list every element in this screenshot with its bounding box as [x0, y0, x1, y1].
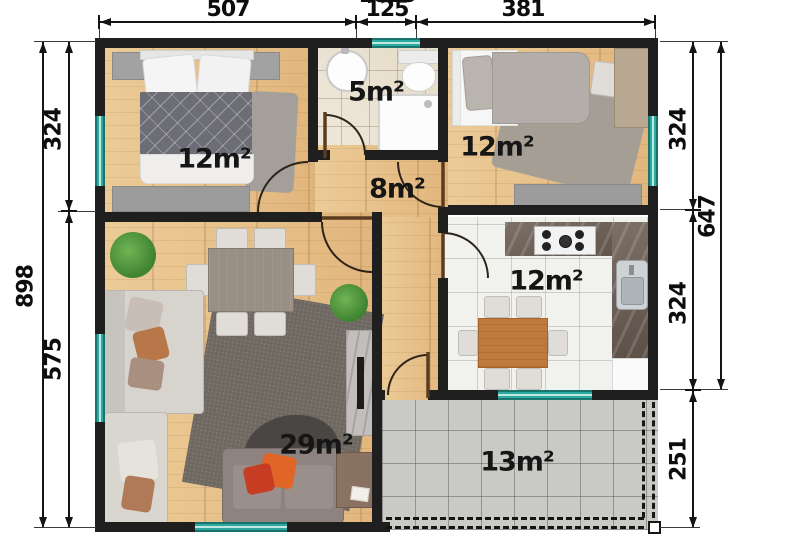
dim-right-1: 324 [667, 95, 692, 165]
dim-arrow [689, 517, 697, 528]
dim-arrow [717, 379, 725, 390]
dim-top-3: 381 [488, 0, 558, 22]
room-label-bedroom-2: 12m² [460, 132, 534, 163]
dim-arrow [689, 42, 697, 53]
dim-arrow [689, 391, 697, 402]
kitchen-door-arc [443, 233, 488, 278]
room-label-living-room: 29m² [279, 430, 353, 461]
dim-left-2: 575 [42, 325, 67, 395]
dim-left-1: 324 [42, 95, 67, 165]
dim-arrow [100, 18, 111, 26]
room-label-bedroom-1: 12m² [177, 144, 251, 175]
dim-arrow [65, 200, 73, 211]
dim-arrow [689, 379, 697, 390]
dim-arrow [39, 42, 47, 53]
room-label-terrace: 13m² [480, 447, 554, 478]
bathroom-door-arc [325, 115, 365, 155]
dim-arrow [717, 42, 725, 53]
dim-top-2: 125 [352, 0, 422, 22]
dim-line-right-inner [692, 42, 694, 528]
dim-right-2: 324 [667, 269, 692, 339]
dim-arrow [65, 42, 73, 53]
dim-arrow [39, 517, 47, 528]
terrace-door-arc [388, 355, 428, 395]
bedroom1-door-arc [258, 162, 308, 212]
dim-left-total: 898 [14, 252, 39, 322]
dim-top-1: 507 [193, 0, 263, 22]
dim-line-left-inner [68, 42, 70, 528]
floor-plan-canvas: 12m² 5m² 12m² 8m² 12m² 29m² 13m² 1013 50… [0, 0, 800, 550]
dim-arrow [644, 18, 655, 26]
dim-arrow [65, 517, 73, 528]
room-label-hallway: 8m² [369, 174, 425, 205]
dim-arrow [65, 212, 73, 223]
living-door-arc [322, 222, 372, 272]
room-label-bathroom: 5m² [348, 77, 404, 108]
dim-right-3: 251 [667, 425, 692, 495]
dim-right-total: 647 [696, 182, 721, 252]
room-label-kitchen: 12m² [509, 266, 583, 297]
